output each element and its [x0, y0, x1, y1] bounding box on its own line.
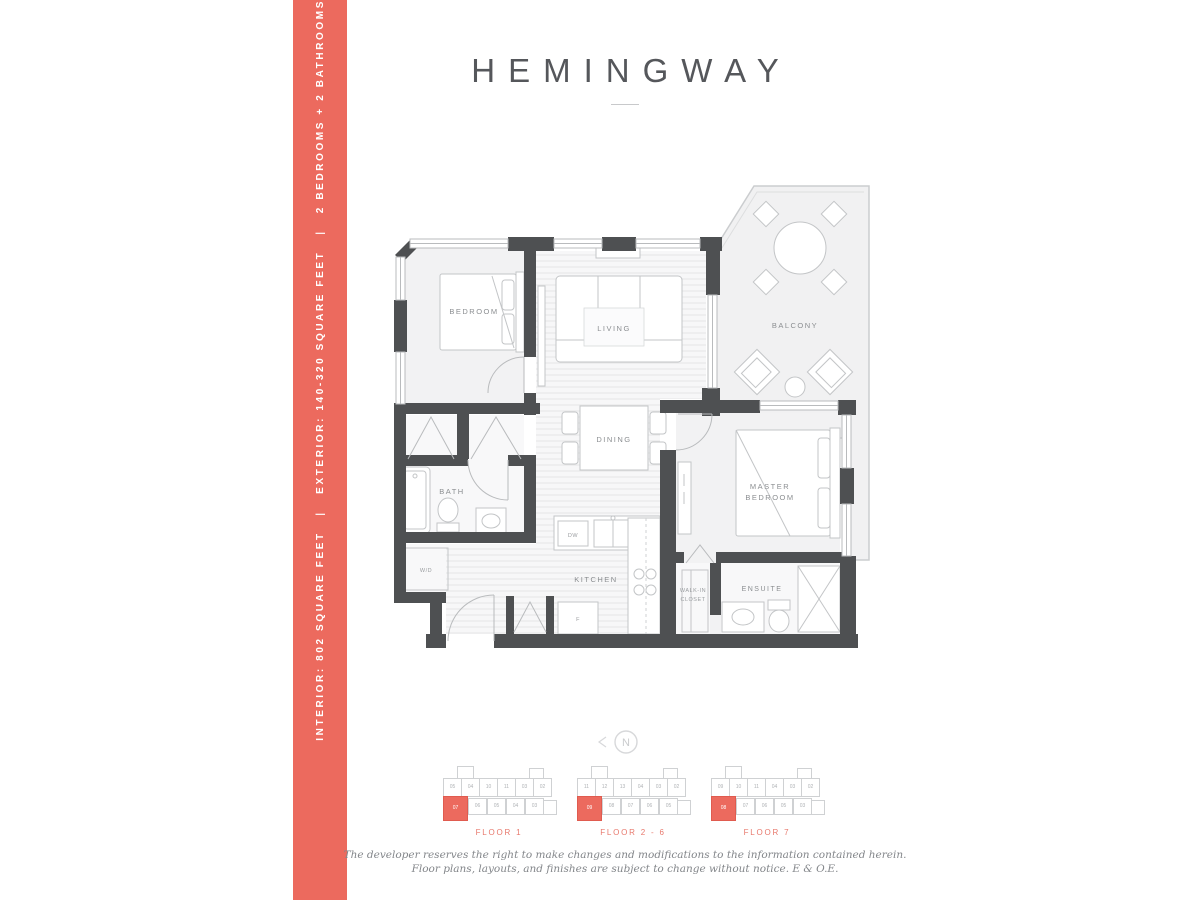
keyplan-unit: 02 [533, 778, 552, 797]
keyplan-unit: 05 [659, 798, 678, 815]
page-title: HEMINGWAY [458, 52, 792, 90]
floor-plan: BALCONY [385, 175, 879, 667]
keyplan-unit: 04 [461, 778, 480, 797]
keyplan-unit: 02 [667, 778, 686, 797]
keyplan-unit: 05 [487, 798, 506, 815]
keyplan-floor-1: 0504101103020706050403 FLOOR 1 [441, 766, 557, 824]
disclaimer-line-2: Floor plans, layouts, and finishes are s… [305, 863, 945, 877]
keyplan-unit: 13 [613, 778, 632, 797]
keyplan-unit: 05 [443, 778, 462, 797]
fridge-label: F [576, 617, 580, 623]
keyplan-unit-highlighted: 09 [577, 796, 602, 821]
bath-label: BATH [439, 487, 464, 496]
title-divider [611, 104, 639, 105]
keyplan-unit: 02 [801, 778, 820, 797]
dishwasher-label: DW [568, 533, 578, 539]
dining-label: DINING [596, 435, 631, 444]
ensuite-label: ENSUITE [742, 586, 783, 593]
bedroom-label: BEDROOM [449, 307, 498, 316]
keyplan-floor-2-6: 1112130403020908070605 FLOOR 2 - 6 [575, 766, 691, 824]
keyplan-unit: 05 [774, 798, 793, 815]
keyplan-unit [677, 800, 691, 815]
keyplan-unit: 03 [515, 778, 534, 797]
keyplan-unit: 03 [649, 778, 668, 797]
keyplan-unit: 08 [602, 798, 621, 815]
keyplan-unit: 11 [577, 778, 596, 797]
keyplan-unit: 04 [765, 778, 784, 797]
keyplan-unit: 03 [793, 798, 812, 815]
keyplan-floor-7: 0910110403020807060503 FLOOR 7 [709, 766, 825, 824]
keyplan-unit: 04 [506, 798, 525, 815]
keyplan-units: 1112130403020908070605 [575, 766, 691, 824]
north-compass: N [596, 728, 642, 756]
balcony-label: BALCONY [772, 321, 818, 330]
keyplan-unit: 11 [747, 778, 766, 797]
keyplan-unit: 12 [595, 778, 614, 797]
keyplan-unit: 10 [479, 778, 498, 797]
walk-in-closet-label-2: CLOSET [680, 597, 705, 603]
separator: | [315, 494, 326, 531]
separator: | [315, 213, 326, 250]
kitchen-label: KITCHEN [574, 575, 617, 584]
keyplan-unit: 10 [729, 778, 748, 797]
keyplan-unit-highlighted: 07 [443, 796, 468, 821]
north-arrow-icon [599, 737, 606, 747]
master-bedroom-label-1: MASTER [750, 482, 790, 491]
keyplan-unit: 07 [621, 798, 640, 815]
keyplan-unit: 06 [755, 798, 774, 815]
keyplan-unit: 03 [525, 798, 544, 815]
keyplan-unit: 09 [711, 778, 730, 797]
keyplan-units: 0504101103020706050403 [441, 766, 557, 824]
keyplan-unit: 07 [736, 798, 755, 815]
keyplan-floor-7-label: FLOOR 7 [744, 828, 791, 837]
north-label: N [622, 737, 630, 749]
unit-stats-text: INTERIOR: 802 SQUARE FEET|EXTERIOR: 140-… [315, 0, 326, 741]
walk-in-closet-label-1: WALK-IN [680, 588, 706, 594]
keyplan-unit [811, 800, 825, 815]
exterior-area-label: EXTERIOR: 140-320 SQUARE FEET [315, 251, 326, 494]
keyplan-unit: 03 [783, 778, 802, 797]
interior-area-label: INTERIOR: 802 SQUARE FEET [315, 531, 326, 740]
washer-dryer-label: W/D [420, 568, 432, 574]
keyplan-units: 0910110403020807060503 [709, 766, 825, 824]
disclaimer-line-1: The developer reserves the right to make… [305, 849, 945, 863]
unit-stats-vertical: INTERIOR: 802 SQUARE FEET|EXTERIOR: 140-… [293, 40, 347, 700]
keyplan-unit: 11 [497, 778, 516, 797]
keyplan-unit: 06 [468, 798, 487, 815]
master-bedroom-label-2: BEDROOM [745, 493, 794, 502]
disclaimer: The developer reserves the right to make… [305, 849, 945, 876]
keyplan-unit [543, 800, 557, 815]
keyplan-unit-highlighted: 08 [711, 796, 736, 821]
floorplan-brochure-page: { "page": { "title": "HEMINGWAY", "accen… [0, 0, 1200, 900]
keyplan-unit: 06 [640, 798, 659, 815]
living-label: LIVING [597, 324, 631, 333]
keyplan-floor-2-6-label: FLOOR 2 - 6 [600, 828, 666, 837]
keyplan-floor-1-label: FLOOR 1 [476, 828, 523, 837]
bed-bath-label: 2 BEDROOMS + 2 BATHROOMS [315, 0, 326, 213]
keyplan-unit: 04 [631, 778, 650, 797]
